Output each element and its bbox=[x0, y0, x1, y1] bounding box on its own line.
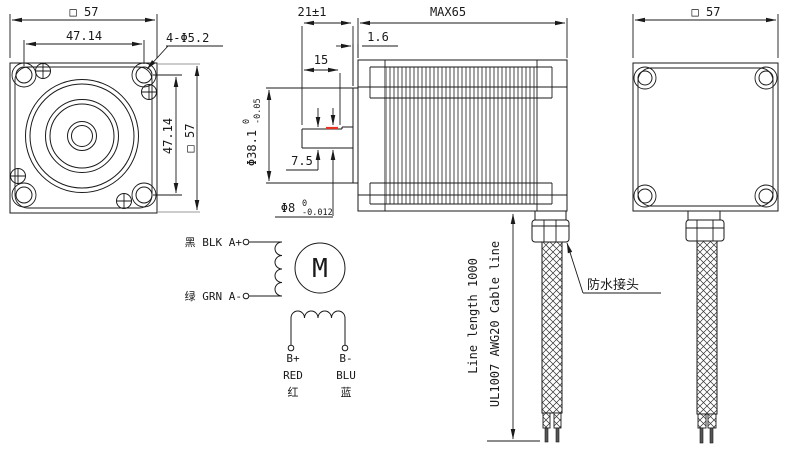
b-plus-cn-label: 红 bbox=[288, 386, 299, 399]
extension-lines bbox=[358, 18, 567, 58]
wiring-diagram: 黑 BLK A+ 绿 GRN A- M B+ RED 红 B- BLU 蓝 bbox=[185, 236, 356, 399]
terminal-b-plus bbox=[288, 345, 294, 351]
mounting-hole bbox=[16, 67, 32, 83]
front-hole-spacing-h-dim: 47.14 bbox=[66, 29, 102, 43]
rear-face-plate bbox=[638, 68, 773, 206]
rotor-circle-outer bbox=[46, 100, 119, 173]
corner-scallop bbox=[755, 185, 777, 207]
b-minus-color-label: BLU bbox=[336, 369, 356, 382]
front-top-size-dim: □ 57 bbox=[70, 5, 99, 19]
phase-b-coil bbox=[291, 311, 345, 318]
mounting-hole bbox=[16, 187, 32, 203]
screw-head bbox=[142, 85, 157, 100]
shaft-circle bbox=[72, 126, 93, 147]
gland-facets bbox=[532, 220, 569, 242]
shaft-profile bbox=[302, 88, 353, 183]
front-view: □ 57 47.14 4-Φ5.2 47.14 □ 57 bbox=[10, 5, 223, 213]
screw-head bbox=[36, 64, 51, 79]
gland-facets bbox=[686, 220, 724, 241]
screw-head bbox=[11, 169, 26, 184]
corner-scallop bbox=[634, 185, 656, 207]
pilot-height-dim: 1.6 bbox=[367, 30, 389, 44]
wire bbox=[554, 413, 561, 428]
wire bbox=[698, 414, 706, 428]
wire-lead bbox=[700, 428, 703, 443]
phase-a-wires bbox=[249, 242, 282, 296]
terminal-a-minus bbox=[243, 293, 249, 299]
braided-cable bbox=[542, 242, 562, 413]
b-plus-label: B+ bbox=[286, 352, 300, 365]
mounting-hole bbox=[638, 189, 652, 203]
front-holes-label: 4-Φ5.2 bbox=[166, 31, 209, 45]
leader-line bbox=[567, 243, 583, 293]
svg-text:Φ38.1: Φ38.1 bbox=[245, 130, 259, 166]
gland-stub bbox=[535, 211, 566, 220]
svg-text:0: 0 bbox=[242, 119, 252, 124]
shaft-dia-dim: Φ8 0 -0.012 bbox=[281, 199, 333, 218]
wire bbox=[708, 414, 716, 428]
rotor-circle-inner bbox=[50, 104, 114, 168]
extension-lines bbox=[302, 26, 353, 125]
pilot-circle-outer bbox=[26, 80, 139, 193]
flat-height-dim: 7.5 bbox=[291, 154, 313, 168]
extension-lines bbox=[266, 88, 358, 183]
mounting-hole bbox=[759, 189, 773, 203]
extension-lines bbox=[633, 14, 778, 58]
front-face-plate bbox=[15, 67, 152, 208]
cable-spec-label: UL1007 AWG20 Cable line bbox=[488, 241, 502, 407]
screw-head bbox=[117, 194, 132, 209]
rear-body-outline bbox=[633, 63, 778, 211]
terminal-a-plus bbox=[243, 239, 249, 245]
wire bbox=[543, 413, 550, 428]
motor-symbol-letter: M bbox=[312, 254, 328, 284]
cable-gland-nut bbox=[686, 220, 724, 241]
b-minus-label: B- bbox=[339, 352, 352, 365]
phase-b-wires bbox=[291, 318, 345, 345]
svg-text:Φ8: Φ8 bbox=[281, 201, 295, 215]
b-plus-color-label: RED bbox=[283, 369, 303, 382]
body-length-dim: MAX65 bbox=[430, 5, 466, 19]
phase-a-coil bbox=[275, 242, 282, 296]
phase-a-plus-label: 黑 BLK A+ bbox=[185, 236, 243, 249]
front-body-outline bbox=[10, 63, 157, 213]
terminal-b-minus bbox=[342, 345, 348, 351]
mounting-hole bbox=[136, 187, 152, 203]
mounting-hole bbox=[759, 71, 773, 85]
phase-a-minus-label: 绿 GRN A- bbox=[185, 289, 242, 303]
svg-text:-0.05: -0.05 bbox=[253, 98, 263, 124]
mounting-hole bbox=[638, 71, 652, 85]
cable-gland-nut bbox=[532, 220, 569, 242]
b-minus-cn-label: 蓝 bbox=[341, 386, 352, 399]
engineering-drawing: □ 57 47.14 4-Φ5.2 47.14 □ 57 21±1 bbox=[0, 0, 790, 453]
cable-length-label: Line length 1000 bbox=[466, 258, 480, 374]
rear-view: □ 57 bbox=[633, 5, 778, 443]
gland-stub bbox=[688, 211, 720, 220]
waterproof-gland-label: 防水接头 bbox=[587, 277, 639, 293]
front-right-size-dim: □ 57 bbox=[183, 124, 197, 153]
rear-top-size-dim: □ 57 bbox=[692, 5, 721, 19]
corner-scallop bbox=[634, 67, 656, 89]
svg-text:-0.012: -0.012 bbox=[302, 208, 333, 218]
front-hole-spacing-v-dim: 47.14 bbox=[161, 118, 175, 154]
corner-scallop bbox=[755, 67, 777, 89]
braided-cable bbox=[697, 241, 717, 414]
wire-lead bbox=[545, 428, 548, 442]
mounting-hole bbox=[136, 67, 152, 83]
side-cable-assembly: Line length 1000 UL1007 AWG20 Cable line… bbox=[466, 211, 661, 442]
side-view: 21±1 MAX65 1.6 15 Φ38.1 0 -0.05 7.5 Φ8 bbox=[242, 5, 567, 218]
wire-lead bbox=[556, 428, 559, 442]
extension-lines bbox=[353, 44, 358, 86]
flat-length-dim: 15 bbox=[314, 53, 328, 67]
shaft-length-dim: 21±1 bbox=[298, 5, 327, 19]
pilot-dia-dim: Φ38.1 0 -0.05 bbox=[242, 98, 263, 166]
wire-lead bbox=[710, 428, 713, 443]
drawing-svg: □ 57 47.14 4-Φ5.2 47.14 □ 57 21±1 bbox=[0, 0, 790, 453]
